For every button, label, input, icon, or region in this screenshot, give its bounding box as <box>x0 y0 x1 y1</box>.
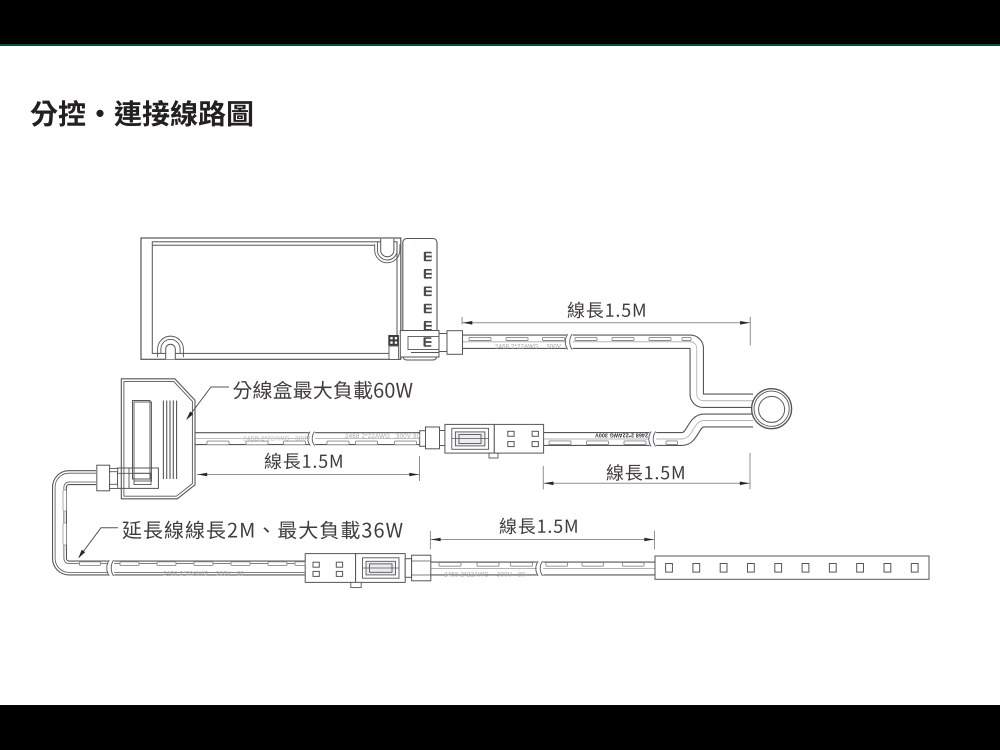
svg-text:2468 2*22AWG 300V: 2468 2*22AWG 300V <box>495 344 561 350</box>
svg-text:24SB 2*22AWG 300V: 24SB 2*22AWG 300V <box>243 435 311 442</box>
svg-text:2468 2*22AWG 300V 80: 2468 2*22AWG 300V 80 <box>163 571 244 578</box>
svg-text:2468 2*22AWG 300V 80: 2468 2*22AWG 300V 80 <box>444 572 525 579</box>
svg-text:2468 2*22AWG 300V: 2468 2*22AWG 300V <box>595 432 648 438</box>
svg-text:2468 2*22AWG 300V 80: 2468 2*22AWG 300V 80 <box>345 433 421 440</box>
